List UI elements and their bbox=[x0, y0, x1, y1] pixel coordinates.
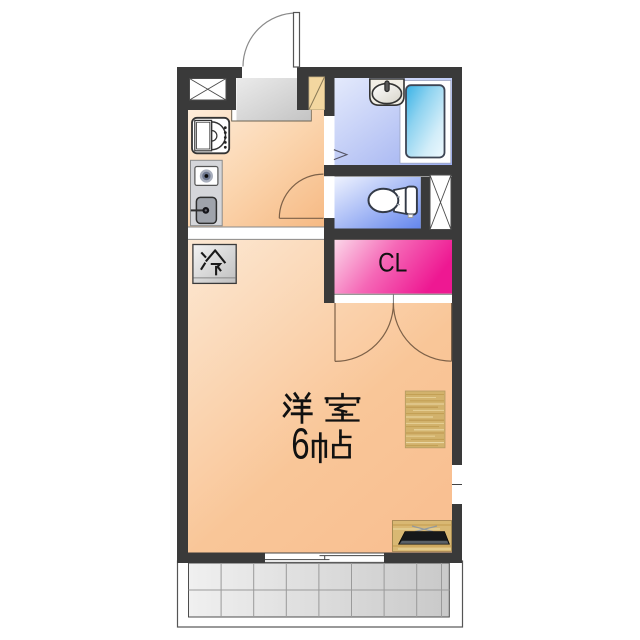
svg-text:6: 6 bbox=[291, 420, 309, 468]
svg-text:CL: CL bbox=[378, 248, 407, 278]
